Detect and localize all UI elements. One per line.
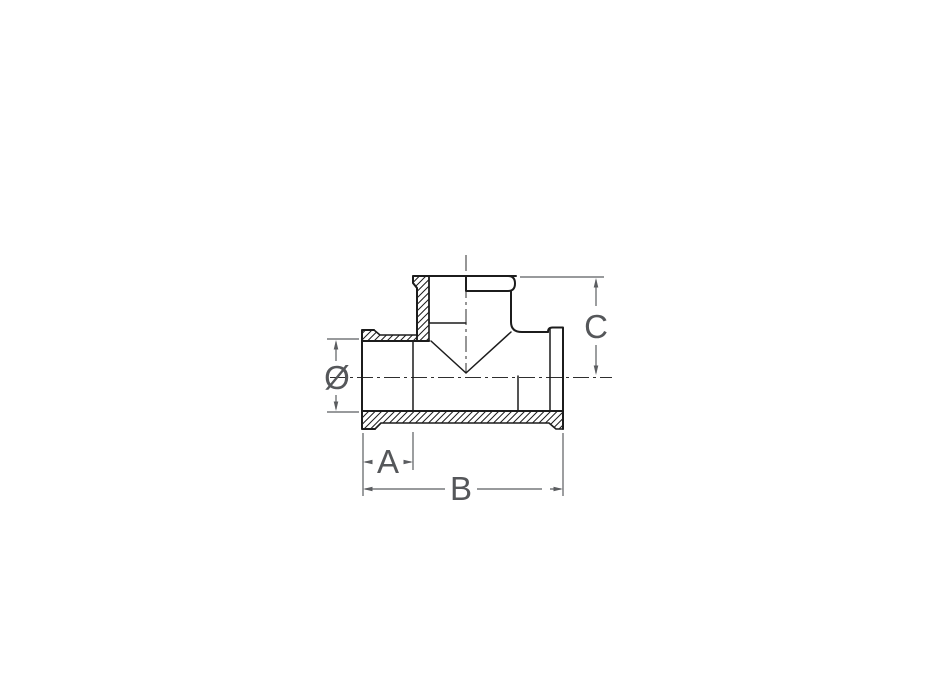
- b-arrow-left: [363, 487, 373, 492]
- dimension-label-diameter: Ø: [324, 359, 350, 396]
- c-arrow-down: [594, 366, 599, 376]
- drill-cone-lines: [431, 332, 511, 373]
- dimension-label-b: B: [450, 470, 472, 507]
- diameter-arrow-down: [334, 402, 339, 412]
- left-top-wall-section: [362, 330, 417, 341]
- fitting-outline: [362, 276, 563, 429]
- dimension-diameter: Ø: [324, 339, 359, 412]
- b-arrow-right: [554, 487, 564, 492]
- a-arrow-left: [363, 460, 373, 465]
- diameter-arrow-up: [334, 340, 339, 350]
- c-arrow-up: [594, 278, 599, 288]
- branch-thread-lines: [429, 276, 466, 323]
- sectioned-walls: [362, 276, 563, 429]
- dimension-label-a: A: [377, 443, 399, 480]
- dimension-label-c: C: [584, 308, 608, 345]
- a-arrow-right: [404, 460, 414, 465]
- branch-right-outer: [511, 291, 548, 332]
- drawing-canvas: Ø A B C: [0, 0, 950, 700]
- bottom-wall-section: [362, 411, 563, 429]
- branch-collar: [466, 276, 515, 291]
- dimension-a: A: [363, 432, 413, 496]
- tee-fitting-technical-drawing: Ø A B C: [0, 0, 950, 700]
